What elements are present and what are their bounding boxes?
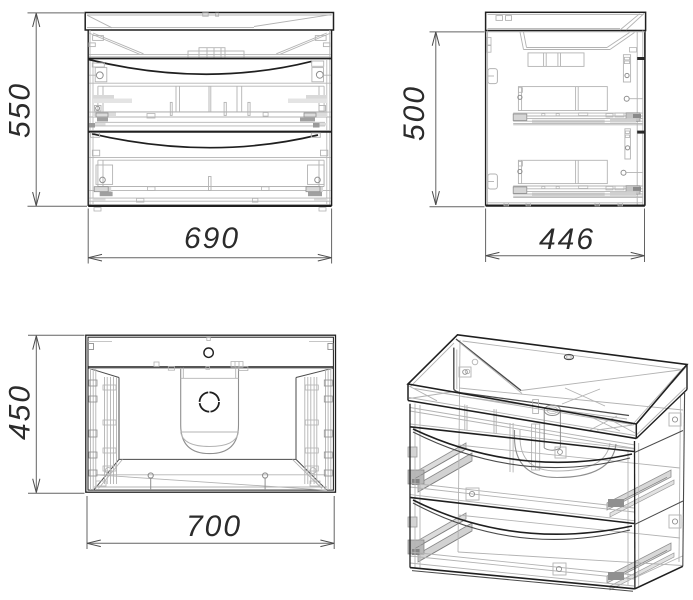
- svg-text:450: 450: [4, 384, 37, 440]
- svg-text:500: 500: [398, 85, 431, 141]
- svg-text:690: 690: [184, 222, 240, 255]
- svg-text:446: 446: [539, 223, 595, 256]
- svg-text:550: 550: [4, 82, 37, 138]
- svg-text:700: 700: [186, 510, 242, 543]
